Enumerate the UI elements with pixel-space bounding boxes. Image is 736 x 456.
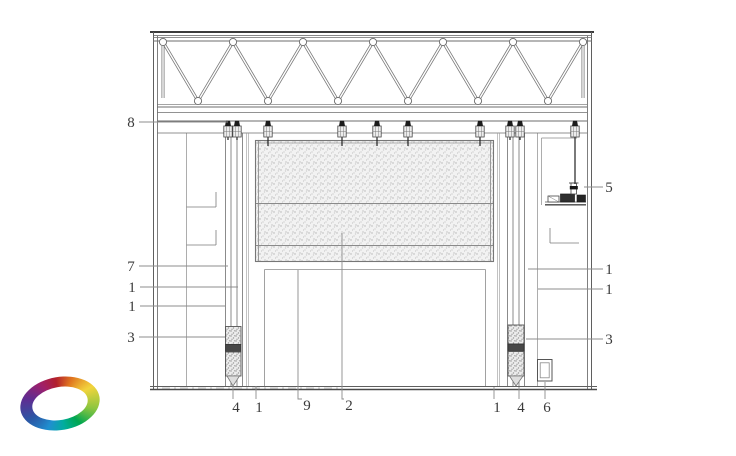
- truss-node: [474, 97, 481, 104]
- callout-label: 5: [605, 180, 613, 196]
- truss-node: [334, 97, 341, 104]
- callout-3: 3: [127, 330, 225, 346]
- technical-drawing-page: 8711351134192146: [0, 0, 736, 456]
- truss-node: [404, 97, 411, 104]
- callout-label: 1: [128, 280, 136, 296]
- callout-label: 3: [127, 330, 135, 346]
- truss-node: [439, 38, 446, 45]
- roof-truss: [153, 38, 592, 108]
- truss-node: [544, 97, 551, 104]
- winch-motor: [542, 138, 587, 205]
- callout-label: 4: [517, 400, 525, 416]
- callout-label: 1: [605, 262, 613, 278]
- callout-label: 1: [255, 400, 263, 416]
- hanger-bracket: [506, 121, 514, 140]
- counterweight-left: [226, 327, 242, 387]
- hanger-bracket: [571, 121, 579, 184]
- callout-1: 1: [255, 386, 263, 416]
- callout-4: 4: [517, 387, 525, 416]
- callout-label: 9: [303, 398, 311, 414]
- callout-6: 6: [543, 382, 551, 416]
- callout-1: 1: [128, 280, 238, 296]
- hanger-bracket: [233, 121, 241, 140]
- callout-label: 1: [605, 282, 613, 298]
- callout-label: 3: [605, 332, 613, 348]
- truss-node: [369, 38, 376, 45]
- truss-node: [229, 38, 236, 45]
- callout-1: 1: [538, 282, 613, 298]
- callout-label: 2: [345, 398, 353, 414]
- callout-1: 1: [528, 262, 613, 278]
- truss-node: [194, 97, 201, 104]
- callout-9: 9: [298, 270, 311, 414]
- truss-node: [509, 38, 516, 45]
- callout-label: 7: [127, 259, 135, 275]
- hanger-bracket: [516, 121, 524, 140]
- truss-node: [299, 38, 306, 45]
- callout-5: 5: [584, 180, 613, 196]
- callout-4: 4: [232, 386, 240, 416]
- callout-1: 1: [128, 299, 225, 315]
- callout-label: 8: [127, 115, 135, 131]
- control-box: [538, 360, 553, 382]
- callout-1: 1: [493, 387, 501, 416]
- gearbox: [561, 194, 575, 202]
- fire-curtain-panel: [256, 141, 494, 262]
- callout-label: 6: [543, 400, 551, 416]
- callout-3: 3: [526, 332, 613, 348]
- elevation-drawing: 8711351134192146: [0, 0, 736, 456]
- callout-label: 4: [232, 400, 240, 416]
- truss-node: [579, 38, 586, 45]
- truss-node: [159, 38, 166, 45]
- counterweight-right: [508, 325, 524, 386]
- callout-label: 1: [128, 299, 136, 315]
- hanger-bracket: [224, 121, 232, 140]
- callout-7: 7: [127, 259, 228, 275]
- truss-node: [264, 97, 271, 104]
- callout-label: 1: [493, 400, 501, 416]
- callout-8: 8: [127, 115, 228, 131]
